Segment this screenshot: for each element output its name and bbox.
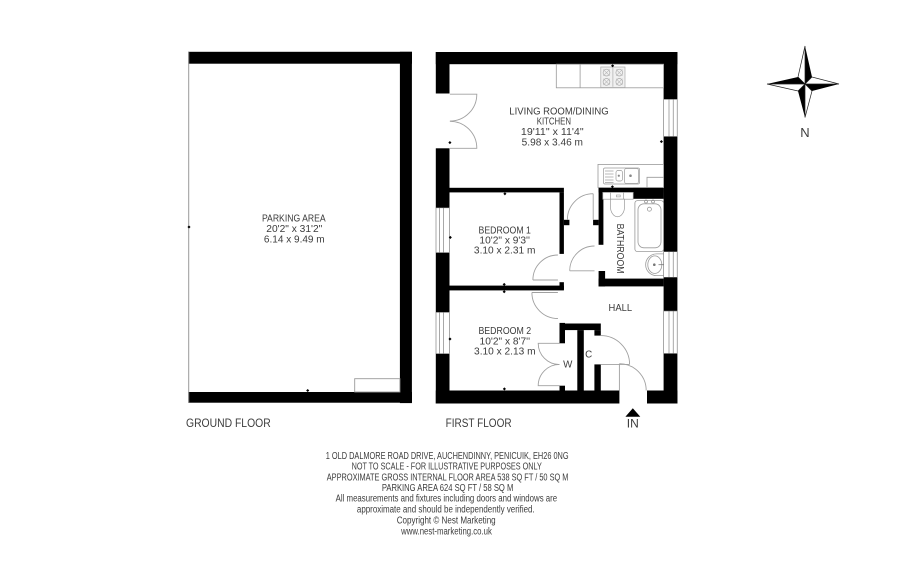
svg-text:3.10 x 2.13 m: 3.10 x 2.13 m xyxy=(474,347,536,358)
svg-text:20'2" x 31'2": 20'2" x 31'2" xyxy=(266,224,322,235)
svg-text:Copyright © Nest Marketing: Copyright © Nest Marketing xyxy=(397,516,496,527)
svg-text:PARKING AREA 624 SQ FT / 58 S: PARKING AREA 624 SQ FT / 58 SQ M xyxy=(382,483,514,494)
svg-text:19'11" x 11'4": 19'11" x 11'4" xyxy=(521,127,584,138)
svg-text:All measurements and fixtures: All measurements and fixtures including … xyxy=(336,494,558,505)
svg-text:PARKING AREA: PARKING AREA xyxy=(262,213,326,224)
svg-text:N: N xyxy=(800,125,809,140)
svg-text:NOT TO SCALE - FOR ILLUSTRATIV: NOT TO SCALE - FOR ILLUSTRATIVE PURPOSES… xyxy=(352,462,543,473)
svg-text:www.nest-marketing.co.uk: www.nest-marketing.co.uk xyxy=(400,526,492,537)
svg-text:FIRST FLOOR: FIRST FLOOR xyxy=(446,416,512,430)
svg-text:6.14 x 9.49 m: 6.14 x 9.49 m xyxy=(264,235,325,246)
svg-text:IN: IN xyxy=(627,416,639,430)
svg-text:3.10 x 2.31 m: 3.10 x 2.31 m xyxy=(474,245,536,256)
svg-text:5.98 x 3.46 m: 5.98 x 3.46 m xyxy=(522,137,583,148)
svg-text:BATHROOM: BATHROOM xyxy=(614,224,625,274)
svg-text:10'2" x 8'7'': 10'2" x 8'7'' xyxy=(480,336,531,347)
svg-text:KITCHEN: KITCHEN xyxy=(537,117,571,128)
svg-text:C: C xyxy=(585,350,592,361)
svg-text:1 OLD DALMORE ROAD DRIVE, AUCH: 1 OLD DALMORE ROAD DRIVE, AUCHENDINNY, P… xyxy=(326,451,569,462)
svg-text:approximate and should be inde: approximate and should be independently … xyxy=(357,505,535,516)
svg-text:APPROXIMATE GROSS INTERNAL FLO: APPROXIMATE GROSS INTERNAL FLOOR AREA 53… xyxy=(327,473,569,484)
svg-text:GROUND FLOOR: GROUND FLOOR xyxy=(186,416,271,430)
svg-text:W: W xyxy=(563,360,573,371)
svg-text:HALL: HALL xyxy=(609,303,633,314)
